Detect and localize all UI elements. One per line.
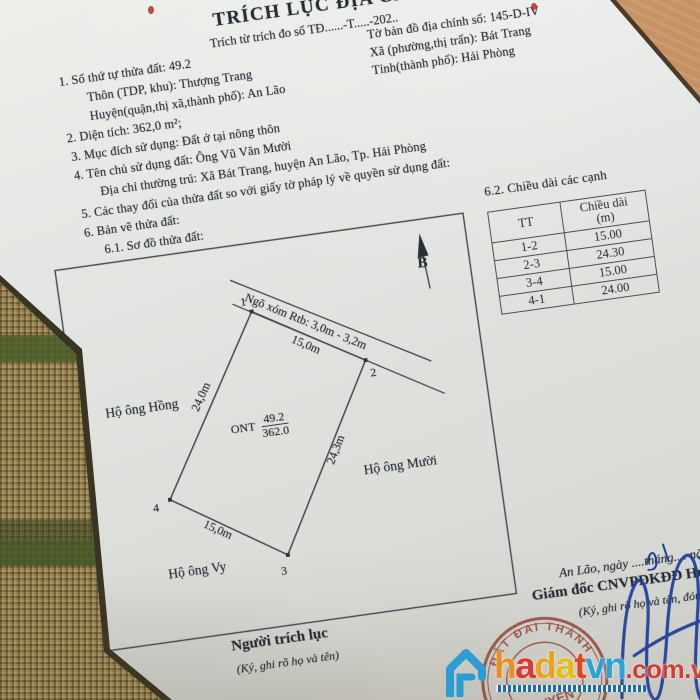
wm-letter: a (515, 645, 534, 686)
wm-suffix: .com.vn (625, 654, 700, 684)
house-icon (444, 647, 492, 697)
wm-letter: d (534, 645, 555, 686)
parcel-fraction: 49.2362.0 (260, 410, 290, 440)
red-speck (531, 3, 537, 10)
watermark-tagline-bar (496, 685, 646, 692)
photo-of-cadastral-document: TRÍCH LỤC ĐỊA CHÍNH Trích từ trích đo số… (0, 0, 700, 700)
paper: TRÍCH LỤC ĐỊA CHÍNH Trích từ trích đo số… (0, 0, 700, 700)
handwritten-month (638, 536, 682, 571)
road-upper-line (230, 254, 431, 387)
wm-letter: v (585, 645, 604, 686)
land-use-code: ONT (230, 419, 256, 436)
wm-letter: n (604, 645, 625, 686)
watermark-word: hadatvn.com.vn (494, 645, 700, 687)
red-speck (148, 6, 154, 14)
wm-letter: h (494, 645, 515, 686)
watermark-logo: hadatvn.com.vn (444, 645, 700, 700)
wm-letter: a (555, 645, 574, 686)
north-label: B (417, 255, 428, 273)
wm-letter: t (574, 645, 585, 686)
